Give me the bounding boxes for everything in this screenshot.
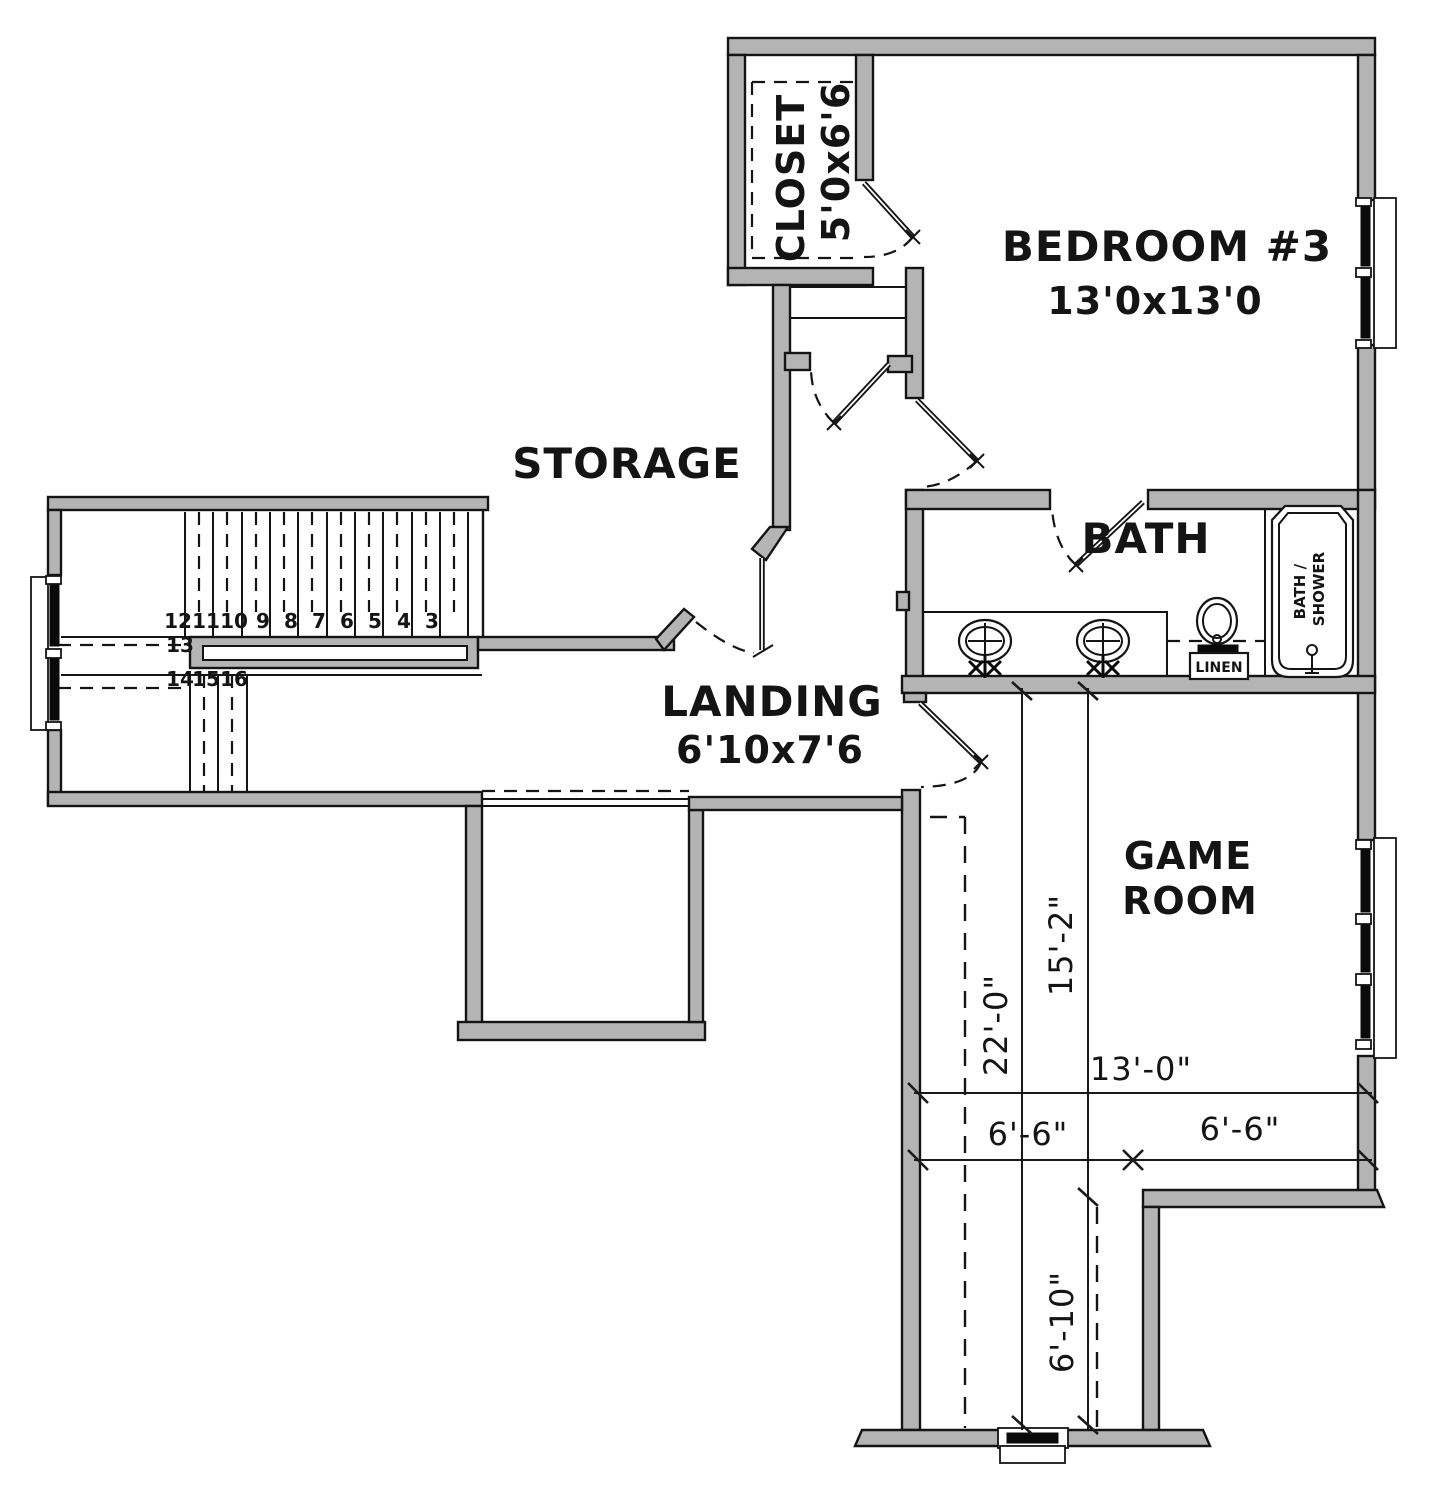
window-bedroom-icon (1356, 198, 1396, 348)
floor-plan-svg: 12 11 10 9 8 7 6 5 4 3 13 14 15 16 (0, 0, 1432, 1500)
wall-segment (48, 510, 61, 575)
wall-segment (1143, 1207, 1159, 1430)
door-jamb (888, 356, 912, 372)
room-size-landing: 6'10x7'6 (676, 728, 864, 772)
door-storage (696, 558, 773, 657)
room-label-gameroom-line1: GAME (1124, 834, 1252, 878)
wall-segment (728, 38, 1375, 55)
wall-segment (1143, 1190, 1384, 1207)
stair-tread-number: 14 (166, 667, 194, 691)
wall-jog (752, 527, 788, 560)
tub-icon: BATH / SHOWER (1272, 506, 1353, 677)
door-gameroom (920, 703, 988, 787)
room-label-landing: LANDING (661, 677, 883, 726)
stair-tread-number: 13 (166, 633, 194, 657)
stair-tread-number: 4 (397, 609, 411, 633)
wall-segment (897, 592, 909, 610)
wall-segment (1358, 678, 1375, 840)
stair-tread-number: 15 (192, 667, 220, 691)
stair-lower-treads (190, 675, 247, 792)
window-left-icon (31, 576, 61, 730)
wall-segment (1358, 55, 1375, 200)
door-bedroom (917, 400, 984, 487)
stair-tread-number: 12 (164, 609, 192, 633)
linen-label: LINEN (1195, 660, 1242, 676)
wall-segment (773, 285, 790, 530)
wall-segment (48, 497, 488, 510)
room-size-bedroom3: 13'0x13'0 (1047, 279, 1262, 323)
wall-segment (48, 792, 482, 806)
wall-segment (856, 55, 873, 180)
stair-tread-number: 9 (256, 609, 270, 633)
wall-segment (478, 637, 674, 650)
wall-segment (1358, 490, 1375, 678)
room-label-closet: CLOSET (769, 94, 813, 262)
dim-width-right: 6'-6" (1200, 1110, 1281, 1148)
stair-tread-number: 16 (220, 667, 248, 691)
wall-segment (458, 1022, 705, 1040)
wall-segment (906, 490, 1050, 509)
wall-segment (1358, 345, 1375, 490)
wall-segment (1358, 1056, 1375, 1196)
wall-segment (466, 806, 482, 1034)
wall-segment (906, 490, 923, 678)
dim-lower-height: 6'-10" (1043, 1271, 1081, 1373)
room-label-storage: STORAGE (512, 439, 742, 488)
sink-right-icon (1077, 620, 1129, 678)
dim-total-width: 13'-0" (1090, 1050, 1192, 1088)
stair-tread-number: 8 (284, 609, 298, 633)
sink-left-icon (959, 620, 1011, 678)
door-vestibule (811, 364, 889, 430)
stair-tread-number: 6 (340, 609, 354, 633)
dim-width-left: 6'-6" (988, 1115, 1069, 1153)
room-label-gameroom-line2: ROOM (1122, 879, 1258, 923)
stair-tread-number: 10 (220, 609, 248, 633)
floor-plan-page: 12 11 10 9 8 7 6 5 4 3 13 14 15 16 (0, 0, 1432, 1500)
room-label-bedroom3: BEDROOM #3 (1002, 222, 1332, 271)
window-gameroom-icon (1356, 838, 1396, 1058)
dim-upper-height: 15'-2" (1042, 894, 1080, 996)
wall-segment (728, 268, 873, 285)
wall-segment (906, 268, 923, 398)
door-closet (864, 183, 920, 257)
stair-tread-number: 5 (368, 609, 382, 633)
door-jamb (904, 693, 926, 702)
room-label-bath: BATH (1081, 514, 1210, 563)
window-bottom-icon (998, 1428, 1068, 1463)
stair-rail-slot (203, 646, 467, 660)
vestibule-shelf-lines (790, 287, 906, 318)
wall-segment (902, 790, 920, 1430)
wall-segment (728, 55, 745, 285)
door-jamb (785, 353, 810, 370)
dim-total-height: 22'-0" (977, 974, 1015, 1076)
wall-segment (689, 797, 902, 810)
linen-cabinet: LINEN (1190, 653, 1248, 679)
stair-tread-number: 7 (312, 609, 326, 633)
tub-label: BATH / SHOWER (1291, 551, 1328, 626)
wall-segment (689, 810, 703, 1022)
stair-tread-number: 11 (192, 609, 220, 633)
wall-segment (902, 676, 1375, 693)
stair-tread-number: 3 (425, 609, 439, 633)
toilet-icon (1197, 598, 1238, 653)
room-size-closet: 5'0x6'6 (814, 82, 858, 243)
void-floor-edge (482, 799, 689, 806)
